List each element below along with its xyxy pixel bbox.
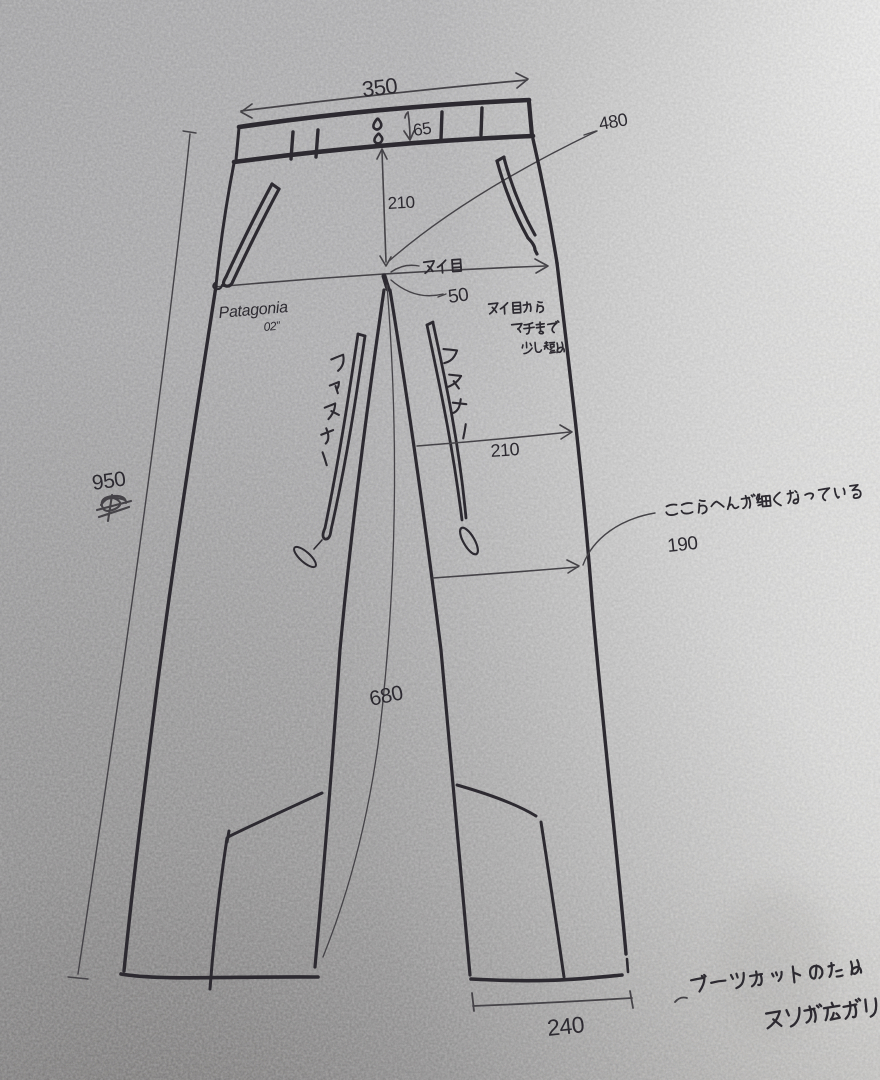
svg-text:240: 240 bbox=[546, 1011, 585, 1041]
svg-text:350: 350 bbox=[361, 73, 399, 102]
svg-text:65: 65 bbox=[412, 119, 432, 140]
svg-text:50: 50 bbox=[447, 284, 470, 308]
svg-text:190: 190 bbox=[666, 533, 698, 557]
svg-text:02”: 02” bbox=[263, 319, 282, 334]
svg-text:950: 950 bbox=[90, 468, 126, 495]
svg-text:210: 210 bbox=[387, 193, 415, 213]
svg-text:210: 210 bbox=[490, 439, 520, 461]
